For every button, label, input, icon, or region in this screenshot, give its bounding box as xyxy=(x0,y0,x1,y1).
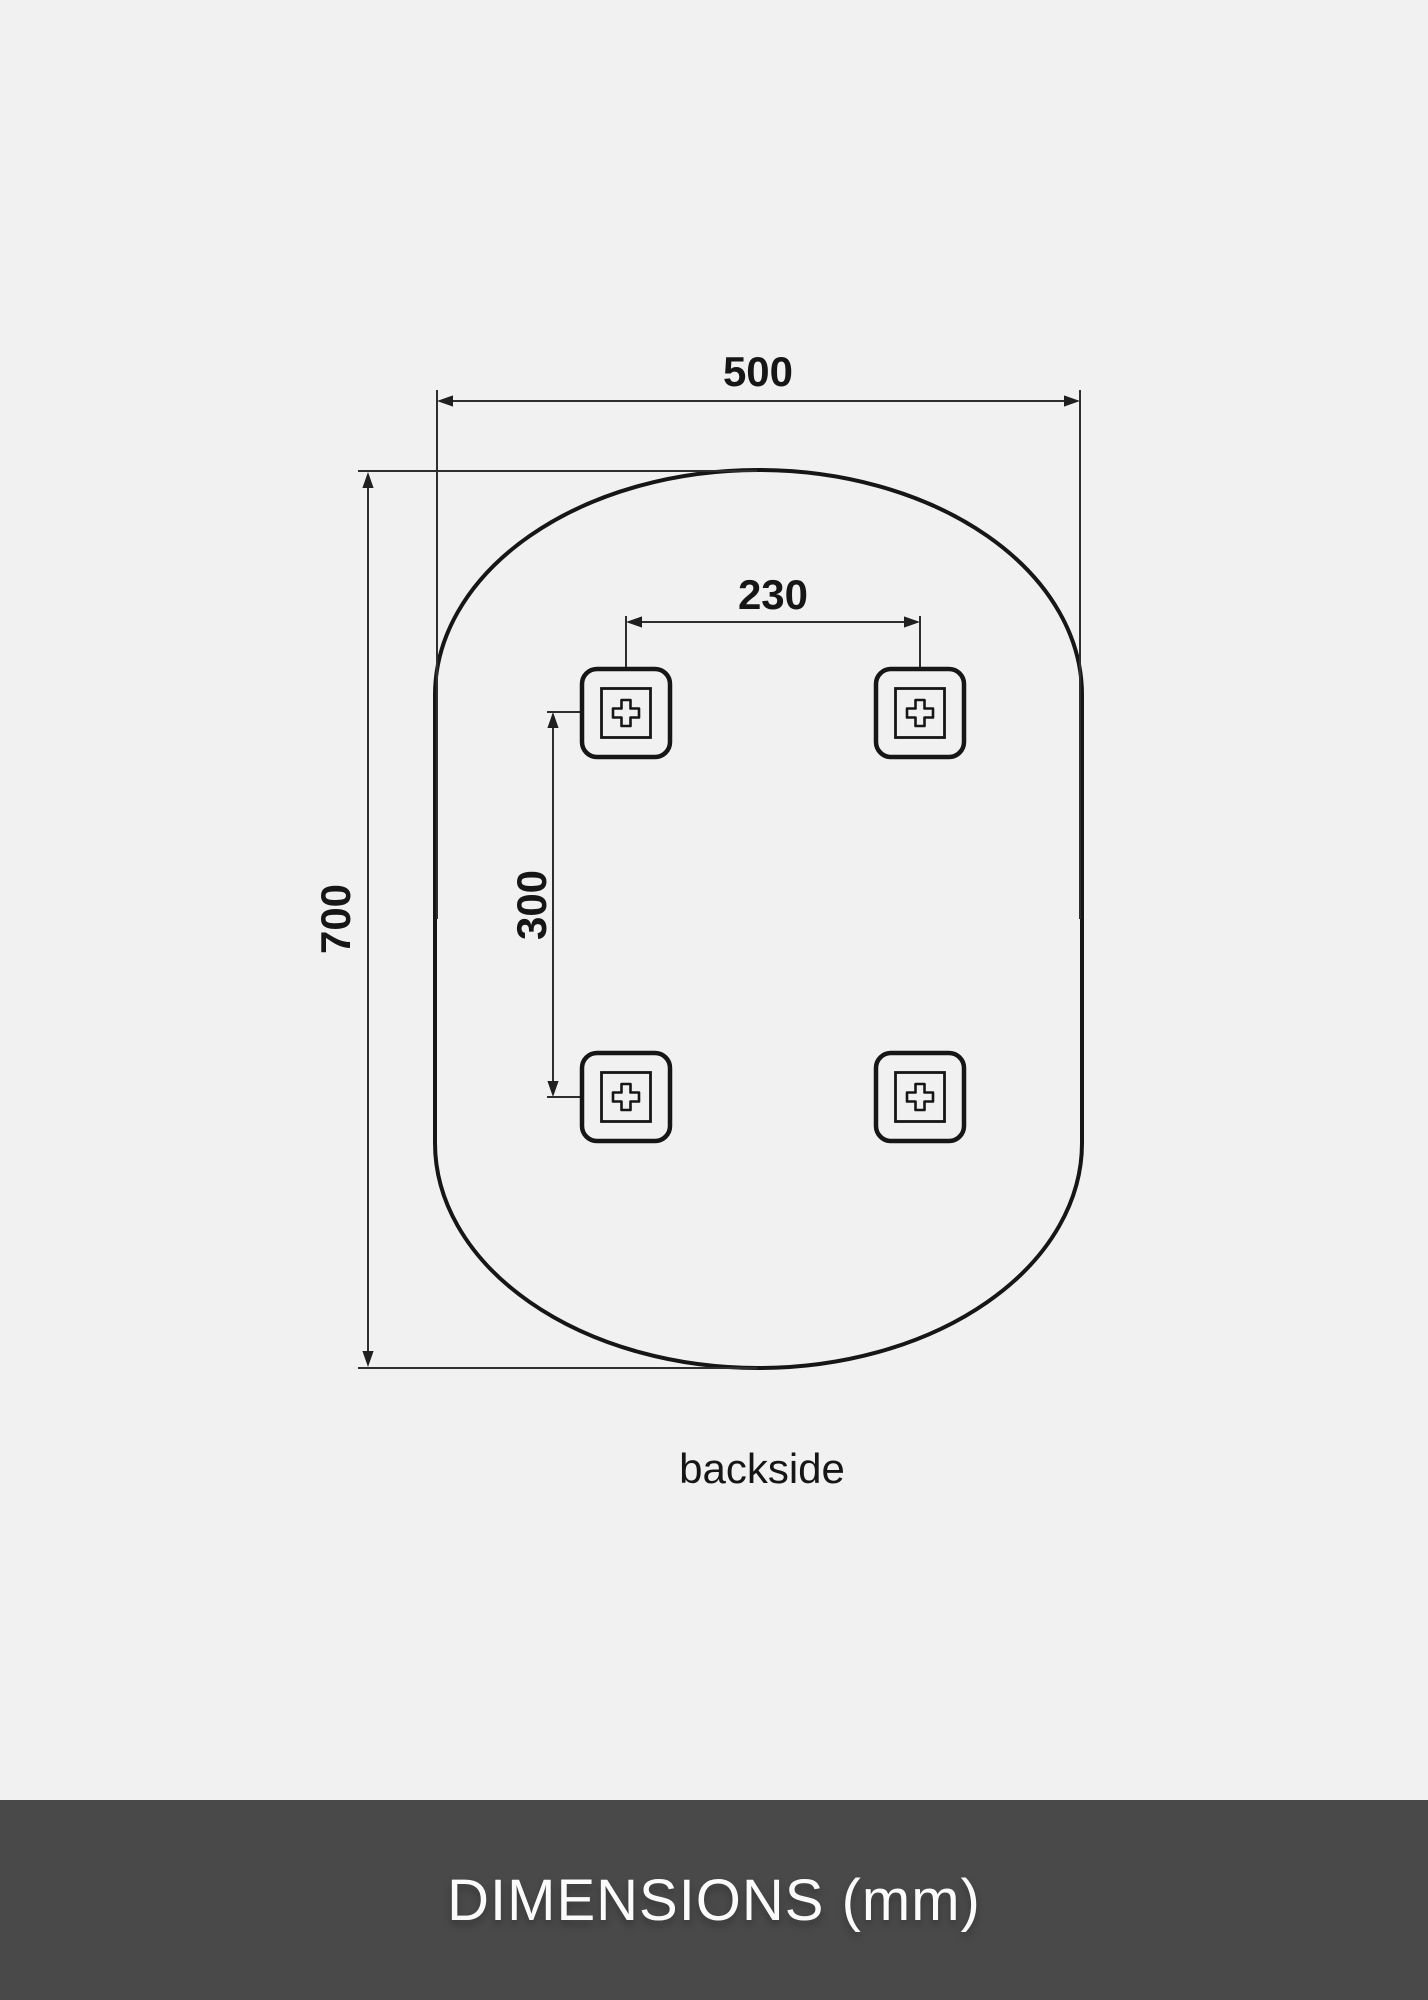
backside-caption: backside xyxy=(679,1445,845,1492)
arrow-left-icon xyxy=(626,616,642,627)
mount-bracket-bottom-right xyxy=(876,1053,964,1141)
mount-bracket-top-right xyxy=(876,669,964,757)
dim-height-label: 700 xyxy=(312,884,359,954)
mirror-dimension-diagram: 500 700 230 300 backside xyxy=(0,0,1428,1800)
dim-width-label: 500 xyxy=(723,348,793,395)
arrow-down-icon xyxy=(362,1351,373,1367)
arrow-right-icon xyxy=(1064,395,1080,406)
mount-bracket-bottom-left xyxy=(582,1053,670,1141)
arrow-down-icon xyxy=(547,1081,558,1097)
dim-spacing-horizontal-label: 230 xyxy=(738,571,808,618)
footer-bar: DIMENSIONS (mm) xyxy=(0,1800,1428,2000)
mount-bracket-top-left xyxy=(582,669,670,757)
dimension-diagram-page: 500 700 230 300 backside DIMENSIONS (mm) xyxy=(0,0,1428,2000)
arrow-up-icon xyxy=(362,472,373,488)
dim-spacing-vertical-label: 300 xyxy=(508,870,555,940)
arrow-left-icon xyxy=(437,395,453,406)
arrow-right-icon xyxy=(904,616,920,627)
footer-title: DIMENSIONS (mm) xyxy=(447,1867,981,1934)
arrow-up-icon xyxy=(547,712,558,728)
